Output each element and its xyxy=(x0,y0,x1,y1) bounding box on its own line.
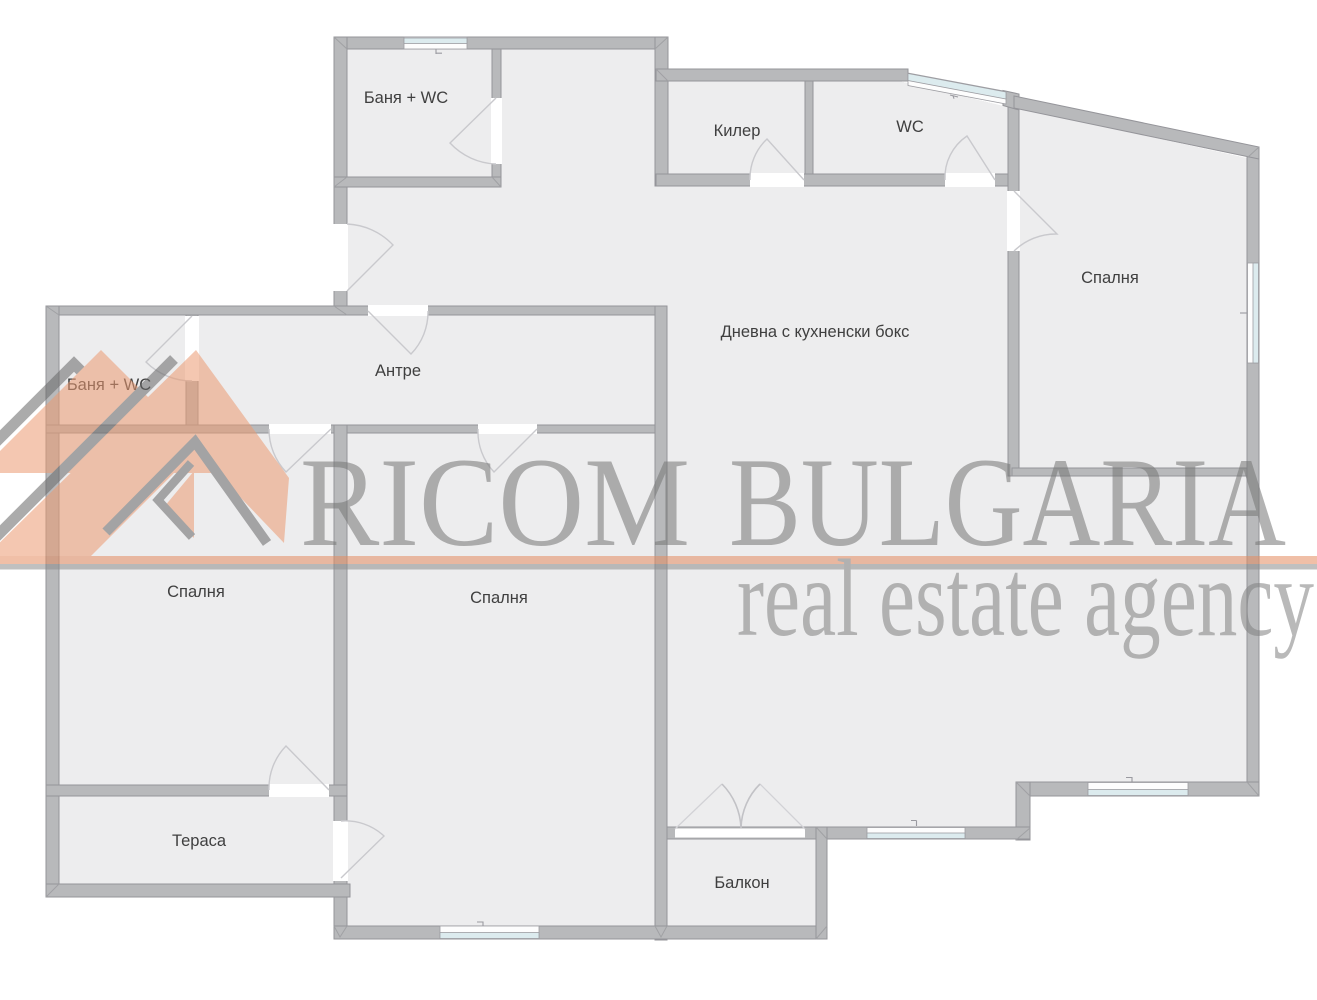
svg-text:real estate agency: real estate agency xyxy=(737,537,1314,659)
svg-text:Спалня: Спалня xyxy=(470,589,528,607)
svg-text:Тераса: Тераса xyxy=(172,832,227,850)
svg-text:RICOM: RICOM xyxy=(300,433,690,573)
svg-text:Баня + WC: Баня + WC xyxy=(364,89,448,107)
svg-text:WC: WC xyxy=(896,118,924,136)
svg-text:Балкон: Балкон xyxy=(714,874,769,892)
svg-text:Килер: Килер xyxy=(714,122,761,140)
svg-text:Дневна с кухненски бокс: Дневна с кухненски бокс xyxy=(721,323,910,341)
svg-text:Антре: Антре xyxy=(375,362,421,380)
svg-text:Спалня: Спалня xyxy=(167,583,225,601)
svg-text:Спалня: Спалня xyxy=(1081,269,1139,287)
